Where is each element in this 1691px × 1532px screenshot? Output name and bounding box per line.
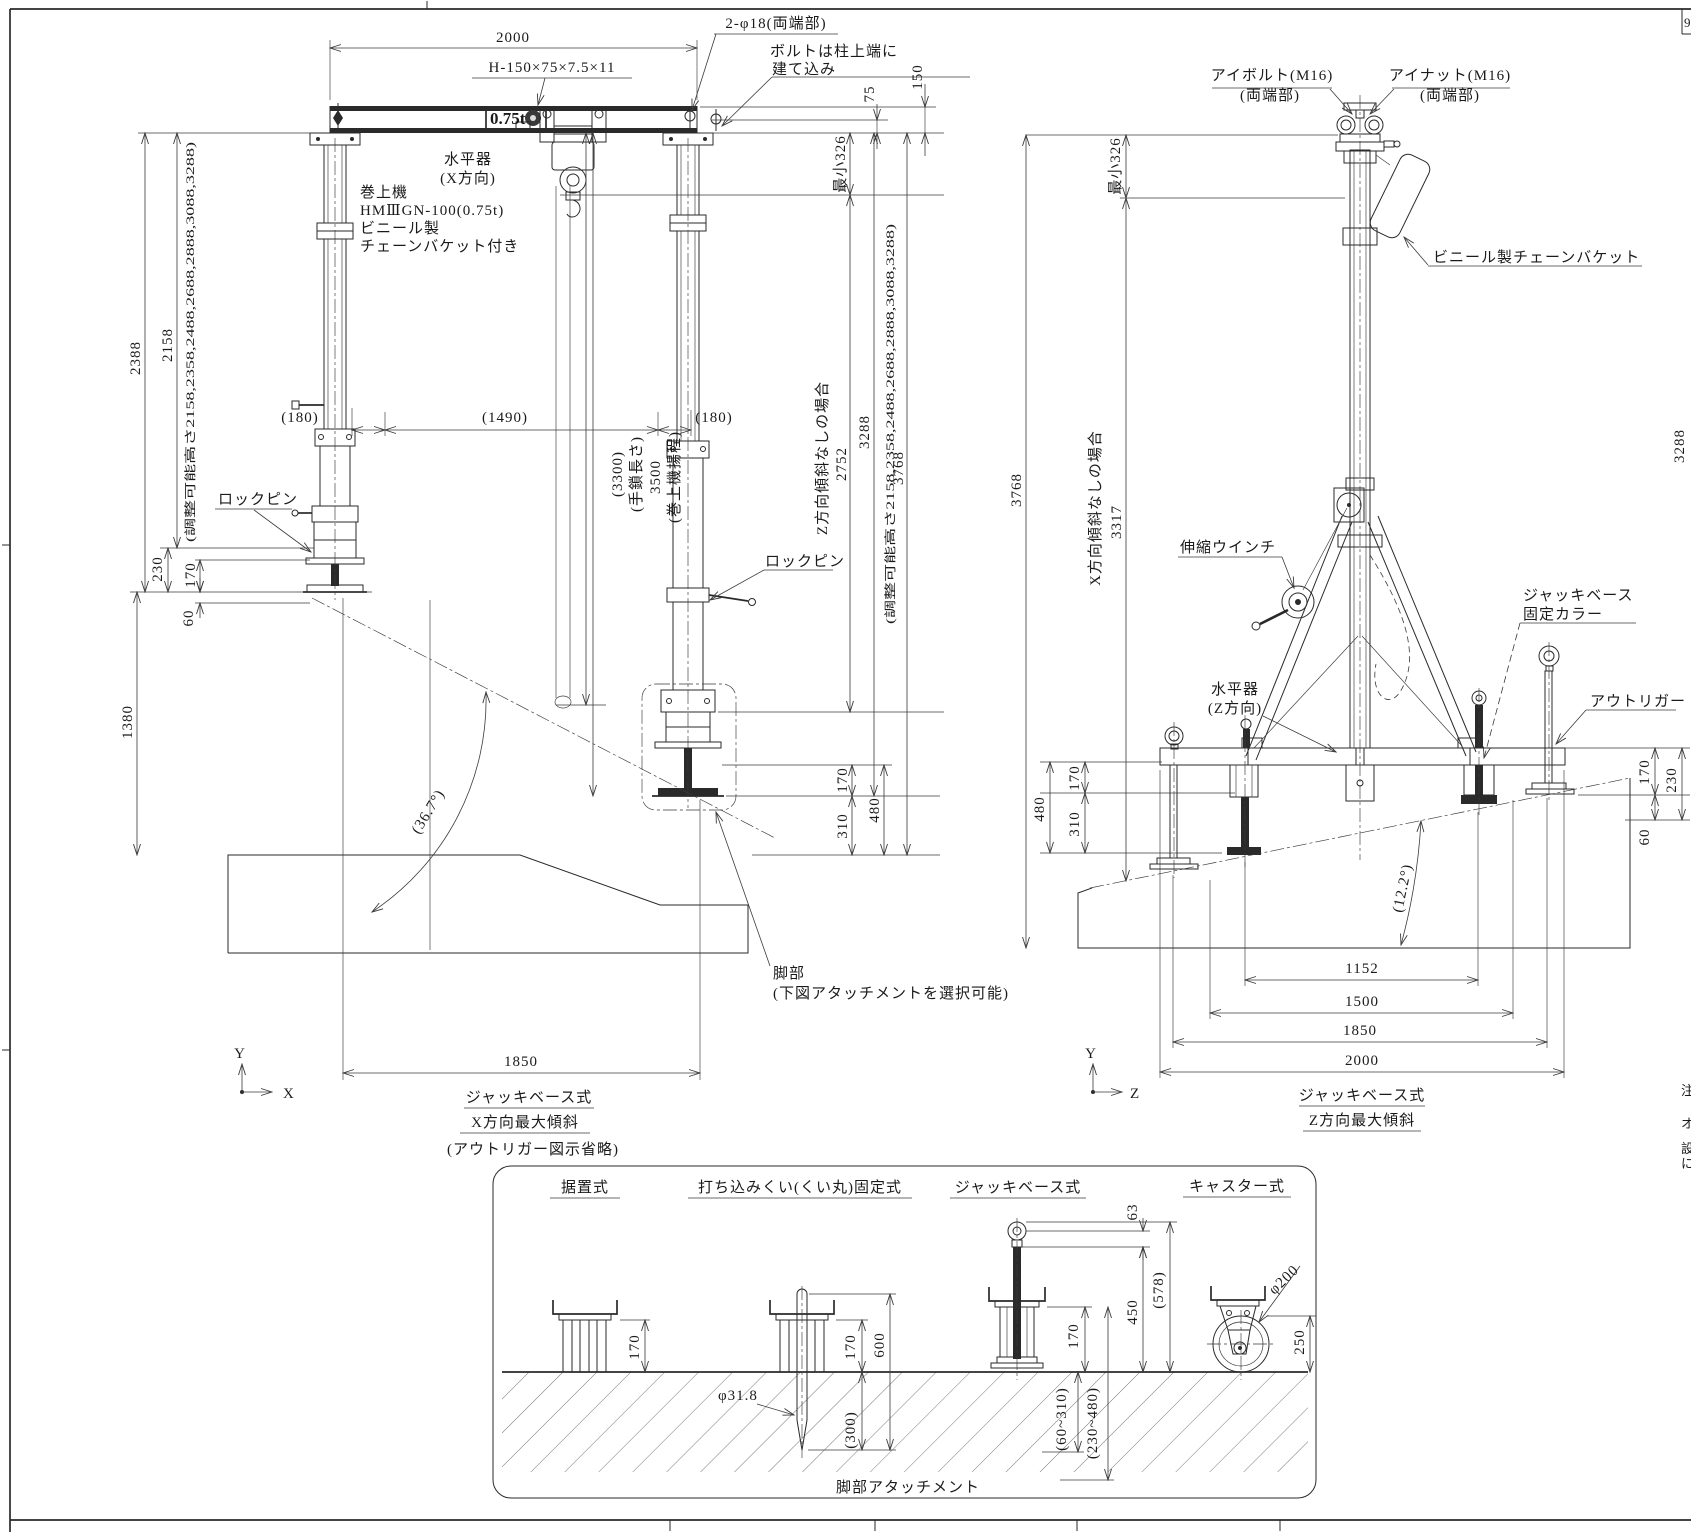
dim-450: 450	[1125, 1299, 1141, 1325]
dim-min326: 最小326	[1107, 137, 1124, 195]
hoist-label: ビニール製	[360, 220, 440, 237]
dim-3768: 3768	[1009, 473, 1025, 507]
winch-label: 伸縮ウインチ	[1180, 539, 1276, 556]
dim-1500: 1500	[1345, 994, 1379, 1010]
left-view-labels: 2000 H-150×75×7.5×11 2-φ18(両端部) ボルトは柱上端に…	[120, 15, 1009, 1158]
hoist-label: チェーンバケット付き	[360, 238, 519, 255]
right-edge-clipped-notes: 注 オ 設 に	[1681, 1083, 1691, 1171]
view-caption: X方向最大傾斜	[471, 1114, 579, 1131]
corner-mark: 9	[1684, 15, 1691, 30]
attachment-title-jackbase: ジャッキベース式	[955, 1179, 1082, 1196]
dim-150: 150	[910, 64, 926, 90]
attachment-title-fixed: 据置式	[561, 1179, 609, 1196]
view-caption: ジャッキベース式	[1299, 1087, 1426, 1104]
dim-170: 170	[1066, 1323, 1082, 1349]
dim-170: 170	[627, 1334, 643, 1360]
dim-range-60-310: (60~310)	[1054, 1387, 1070, 1451]
dim-63: 63	[1125, 1204, 1141, 1221]
left-view-geometry	[228, 103, 775, 953]
dim-min326: 最小326	[832, 135, 849, 193]
view-caption: (アウトリガー図示省略)	[447, 1141, 619, 1158]
dim-2388: 2388	[128, 341, 144, 375]
dim-1152: 1152	[1345, 961, 1378, 977]
panel-caption: 脚部アタッチメント	[836, 1479, 980, 1496]
leg-attachments-panel: 据置式 打ち込みくい(くい丸)固定式 ジャッキベース式 キャスター式 170 φ…	[493, 1166, 1316, 1498]
attachment-title-caster: キャスター式	[1189, 1178, 1285, 1195]
dim-170: 170	[183, 562, 199, 588]
dim-3317: 3317	[1109, 505, 1125, 539]
lock-pin-label: ロックピン	[765, 553, 845, 570]
dim-2000: 2000	[496, 30, 530, 46]
dim-300: (300)	[843, 1411, 859, 1449]
dim-60: 60	[181, 610, 197, 627]
dim-3768: 3768	[891, 451, 907, 485]
dim-578: (578)	[1151, 1271, 1167, 1309]
dim-170: 170	[835, 767, 851, 793]
angle-12-2: (12.2°)	[1390, 862, 1416, 914]
hoist-label: HMⅢGN-100(0.75t)	[360, 203, 504, 219]
dim-250: 250	[1292, 1329, 1308, 1355]
chain-bucket-label: ビニール製チェーンバケット	[1433, 249, 1640, 266]
pile-diameter: φ31.8	[718, 1388, 758, 1404]
edge-dim-3288: 3288	[1672, 429, 1688, 463]
dim-1850: 1850	[1343, 1023, 1377, 1039]
angle-36-7: (36.7°)	[409, 787, 449, 837]
title-block-corner: 9	[1682, 9, 1691, 34]
hand-chain-label: (手鎖長さ)	[628, 436, 645, 512]
view-caption: Z方向最大傾斜	[1309, 1112, 1415, 1129]
dim-180: (180)	[695, 410, 733, 426]
level-label: 水平器	[444, 151, 492, 168]
hoist-label: 巻上機	[360, 184, 408, 201]
caster-diameter: φ200	[1266, 1262, 1302, 1298]
bolt-note: ボルトは柱上端に	[770, 43, 898, 60]
level-label: 水平器	[1211, 681, 1259, 698]
axis-y-label: Y	[234, 1046, 246, 1062]
adjustable-heights: (調整可能高さ2158,2358,2488,2688,2888,3088,328…	[183, 142, 197, 542]
hole-callout: 2-φ18(両端部)	[725, 15, 826, 32]
hoist-lift-label: (巻上機揚程)	[666, 431, 683, 523]
leg-note: (下図アタッチメントを選択可能)	[773, 985, 1009, 1002]
axis-y-label: Y	[1085, 1046, 1097, 1062]
no-x-tilt-label: X方向傾斜なしの場合	[1087, 430, 1104, 586]
jack-collar-label: ジャッキベース	[1523, 588, 1634, 604]
dim-180: (180)	[281, 410, 319, 426]
adjustable-heights: (調整可能高さ2158,2358,2488,2688,2888,3088,328…	[883, 224, 897, 624]
left-view-dimensions	[130, 34, 970, 1133]
sheet-frame: 9 注 オ 設 に	[2, 1, 1691, 1532]
dim-75: 75	[862, 86, 878, 103]
eyenut-label: (両端部)	[1420, 87, 1480, 104]
dim-230: 230	[1664, 767, 1680, 793]
dim-range-230-480: (230~480)	[1085, 1387, 1101, 1459]
dim-230: 230	[150, 556, 166, 582]
dim-480: 480	[1032, 796, 1048, 822]
dim-170: 170	[1637, 759, 1653, 785]
dim-3500: 3500	[648, 460, 664, 494]
outrigger-label: アウトリガー	[1590, 693, 1686, 710]
bolt-note: 建て込み	[772, 61, 836, 78]
dim-310: 310	[835, 813, 851, 839]
edge-note: 設	[1681, 1141, 1691, 1156]
jack-collar-label: 固定カラー	[1523, 606, 1603, 623]
dim-2752: 2752	[834, 447, 850, 481]
dim-170: 170	[843, 1334, 859, 1360]
dim-2000: 2000	[1345, 1053, 1379, 1069]
drawing-sheet: 9 注 オ 設 に	[0, 0, 1691, 1532]
dim-310: 310	[1067, 811, 1083, 837]
edge-note: 注	[1681, 1083, 1691, 1098]
dim-3300: (3300)	[610, 451, 626, 497]
dim-3288: 3288	[857, 415, 873, 449]
attachment-caster	[1207, 1266, 1316, 1380]
eyenut-label: アイナット(M16)	[1389, 68, 1511, 84]
no-z-tilt-label: Z方向傾斜なしの場合	[814, 381, 831, 535]
capacity-plate: 0.75t	[490, 109, 526, 128]
level-label: (X方向)	[440, 170, 496, 187]
right-view-labels: アイボルト(M16) (両端部) アイナット(M16) (両端部) ビニール製チ…	[1009, 67, 1688, 1129]
eyebolt-label: (両端部)	[1240, 87, 1300, 104]
leg-note: 脚部	[773, 965, 805, 982]
level-label: (Z方向)	[1208, 700, 1262, 717]
dim-600: 600	[872, 1332, 888, 1358]
dim-170: 170	[1067, 765, 1083, 791]
view-caption: ジャッキベース式	[466, 1089, 593, 1106]
beam-spec: H-150×75×7.5×11	[489, 60, 616, 76]
dim-1850: 1850	[504, 1054, 538, 1070]
edge-note: に	[1681, 1156, 1691, 1171]
edge-note: オ	[1681, 1116, 1691, 1131]
cad-drawing: 9 注 オ 設 に	[0, 0, 1691, 1532]
dim-1380: 1380	[120, 705, 136, 739]
lock-pin-label: ロックピン	[218, 491, 298, 508]
dim-2158: 2158	[160, 328, 176, 362]
dim-480: 480	[867, 797, 883, 823]
eyebolt-label: アイボルト(M16)	[1211, 67, 1334, 84]
dim-60: 60	[1637, 829, 1653, 846]
dim-1490: (1490)	[482, 410, 528, 426]
attachment-title-pile: 打ち込みくい(くい丸)固定式	[698, 1179, 902, 1196]
axis-z-label: Z	[1130, 1086, 1140, 1102]
axis-x-label: X	[283, 1086, 295, 1102]
left-column	[292, 133, 367, 600]
